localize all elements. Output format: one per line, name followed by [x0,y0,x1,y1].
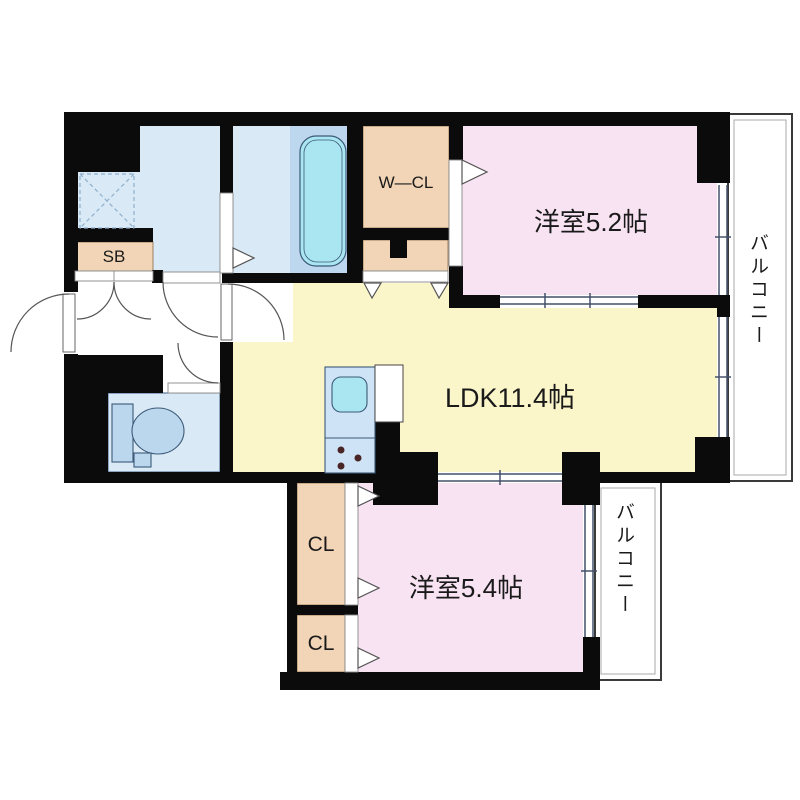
bathtub-icon [300,136,346,266]
ldk-door-leaf [221,284,232,340]
entrance-door-leaf [63,294,75,352]
room-52-label: 洋室5.2帖 [465,202,717,239]
room-bath-floor [233,126,290,273]
shoebox-door-arc-left [77,282,114,319]
closet-upper-label: CL [296,533,346,557]
closet-lower-label: CL [296,632,346,656]
ldk-door-arc [228,284,284,340]
shoebox-label: SB [75,247,153,267]
cl-lower-door [345,615,358,672]
entrance-door-arc [11,294,69,352]
wcl-door [449,160,462,266]
balcony-bottom-label: バルコニー [610,502,637,617]
ldk-label: LDK11.4帖 [390,376,630,415]
sliding-door-room52-ldk [500,293,638,308]
balcony-right-label: バルコニー [744,233,771,348]
kitchen-sink-icon [332,377,367,412]
room-54-label: 洋室5.4帖 [340,568,592,605]
washroom-door [163,272,220,283]
shoebox-door-arc-right [114,282,151,319]
washroom-door-arc [163,282,218,337]
toilet-door [168,383,220,393]
bath-door [220,193,233,273]
walk-in-closet-label: W—CL [363,173,449,193]
sliding-door-ldk-room54 [438,470,562,485]
floor-plan: 洋室5.2帖 LDK11.4帖 洋室5.4帖 W—CL SB CL CL バルコ… [0,0,800,800]
toilet-door-arc [178,343,218,383]
hall-closet-door [363,271,448,282]
